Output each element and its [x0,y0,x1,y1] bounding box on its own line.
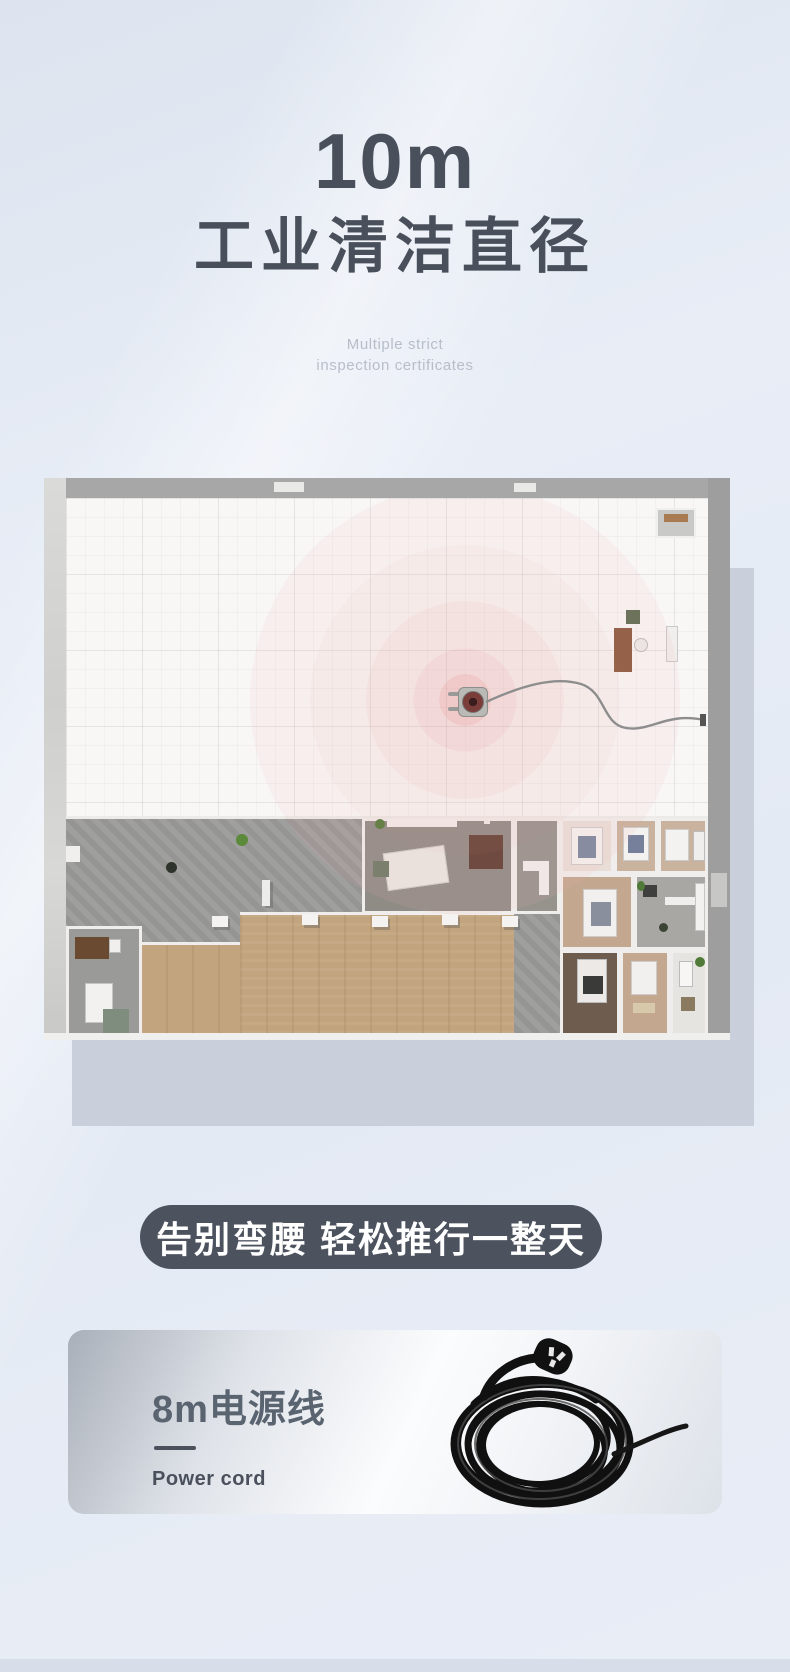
armchair [373,861,389,877]
floorplan-illustration [44,478,730,1040]
pillar [442,914,458,925]
green-cabinet [103,1009,129,1033]
wood-floor-area [240,912,514,1033]
hero-subtitle-line2: inspection certificates [0,355,790,376]
pillar [502,916,518,927]
bedroom [614,818,658,874]
floorplan-top-wall [44,478,730,498]
factory-hall-floor [66,498,708,816]
floorplan-right-wall [708,478,730,1040]
hero-subtitle: Multiple strict inspection certificates [0,334,790,376]
bathroom [670,950,708,1033]
wardrobe [695,883,705,931]
sofa [383,845,450,891]
shelf [665,897,695,905]
living-room [362,818,514,914]
headline-label: 工业清洁直径 [0,198,790,285]
wall-cabinet [66,846,80,862]
plant [236,834,248,846]
card-divider [154,1446,196,1450]
blanket [591,902,611,926]
floorplan-bottom-wall [44,1033,730,1040]
bedroom [560,818,614,874]
kitchen [514,818,560,914]
dresser [633,1003,655,1013]
study-room [634,874,708,950]
wardrobe [693,831,705,861]
bed [583,889,617,937]
equipment-top [583,976,603,994]
feature-banner: 告别弯腰 轻松推行一整天 [140,1205,602,1269]
feature-banner-label: 告别弯腰 轻松推行一整天 [156,1211,586,1263]
stool [659,923,668,932]
card-subtitle: Power cord [152,1468,266,1491]
wood-floor-step [140,942,240,1033]
counter [539,869,549,895]
hall-sideboard [666,626,678,662]
bedroom [560,874,634,950]
plant [375,819,385,829]
machine-brush [462,691,484,713]
pillar [212,916,228,927]
washer [679,961,693,987]
tv-console [387,819,457,827]
bed [571,827,603,865]
floorplan-left-wall [44,478,66,1040]
hall-desk [614,628,632,672]
bed [665,829,689,861]
entry-structure [656,508,696,538]
blanket [628,835,644,853]
top-wall-door [274,482,304,492]
entry-bench [664,514,688,522]
floorplan-interior [66,498,708,1033]
robot-vacuum [166,862,177,873]
plug-head [529,1334,577,1379]
basin [681,997,695,1011]
right-wall-door [711,873,727,907]
pillar [302,914,318,925]
blanket [578,836,596,858]
hall-chair [634,638,648,652]
bed [623,827,649,861]
scrubber-machine [448,686,488,718]
plant [695,957,705,967]
hero-subtitle-line1: Multiple strict [0,334,790,355]
top-wall-door [514,483,536,492]
power-cord-card: 8m电源线 Power cord [68,1330,722,1514]
pillar [372,916,388,927]
bedroom [658,818,708,874]
coiled-power-cord-illustration [414,1334,694,1514]
lower-rooms [66,816,708,1033]
office-chair [109,939,121,953]
bottom-strip [0,1659,790,1672]
bed [631,961,657,995]
utility-room [560,950,620,1033]
spacer [484,818,490,824]
hall-plant [626,610,640,624]
office-room [66,926,142,1033]
standing-sign [262,880,270,906]
equipment [577,959,607,1003]
plant [637,881,645,891]
headline-value: 10m [0,116,790,207]
dining-table [469,835,503,869]
desk-chair [643,885,657,897]
bedroom [620,950,670,1033]
card-title: 8m电源线 [152,1378,326,1433]
office-desk [75,937,109,959]
